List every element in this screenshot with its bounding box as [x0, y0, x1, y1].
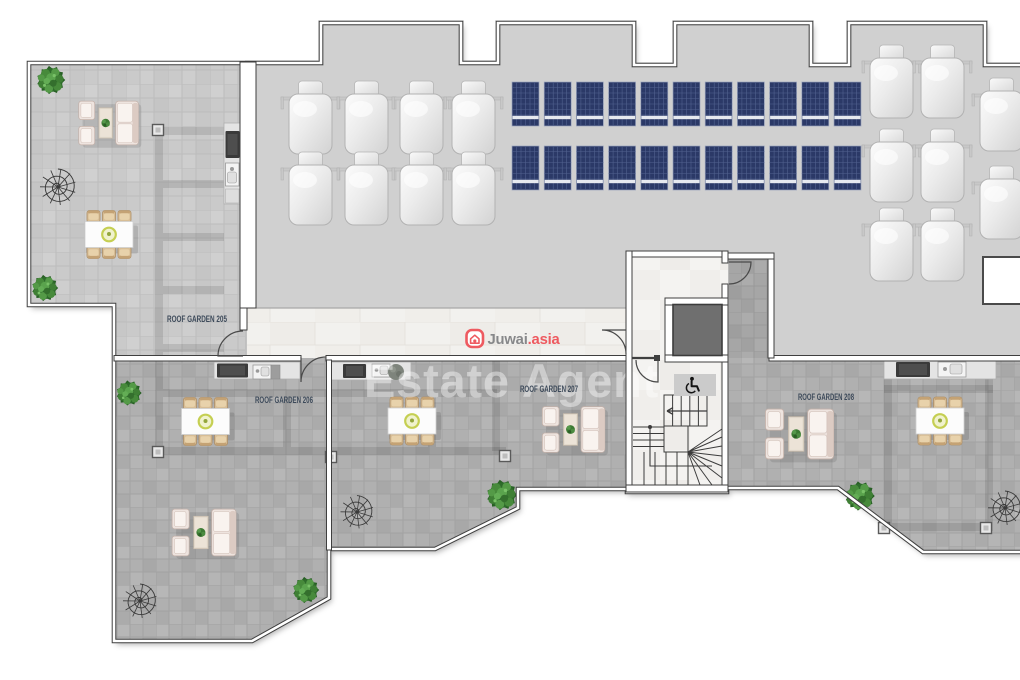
svg-text:ROOF GARDEN 205: ROOF GARDEN 205 [167, 314, 227, 324]
svg-text:ROOF GARDEN 207: ROOF GARDEN 207 [520, 384, 578, 394]
svg-text:ROOF GARDEN 208: ROOF GARDEN 208 [798, 392, 854, 402]
svg-text:ROOF GARDEN 206: ROOF GARDEN 206 [255, 395, 313, 405]
svg-text:Estate Agent: Estate Agent [364, 354, 659, 407]
svg-text:Juwai.asia: Juwai.asia [488, 332, 561, 348]
